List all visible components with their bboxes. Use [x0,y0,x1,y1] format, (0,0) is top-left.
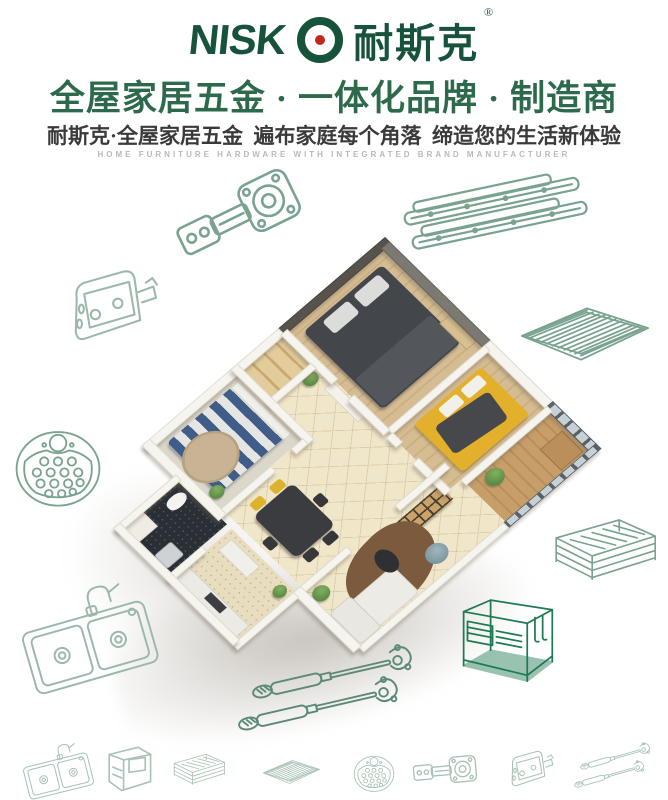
brand-logo: NISK 耐斯克® [0,14,668,66]
perforated-plate-icon [352,752,396,794]
perforated-plate-icon [12,424,104,510]
tagline-en: HOME FURNITURE HARDWARE WITH INTEGRATED … [0,150,668,159]
kitchen-sink-icon [17,736,98,800]
logo-o-icon [297,17,343,63]
poster: NISK 耐斯克® 全屋家居五金 · 一体化品牌 · 制造商 耐斯克·全屋家居五… [0,0,668,800]
door-bracket-icon [62,266,168,350]
logo-cjk: 耐斯克® [353,11,479,69]
wire-shelf-icon [510,294,658,374]
cabinet-hinge-icon [163,155,311,275]
countertop-rack-icon [454,592,560,694]
subheadline: 耐斯克·全屋家居五金 遍布家庭每个角落 缔造您的生活新体验 [0,120,668,150]
logo-text: NISK [186,16,287,64]
door-bracket-icon [506,746,558,794]
wire-basket-icon [540,512,666,590]
wire-basket-icon [166,748,230,792]
registered-mark: ® [484,5,495,20]
cabinet-hinge-icon [410,745,480,795]
wire-shelf-icon [258,752,324,792]
headline: 全屋家居五金 · 一体化品牌 · 制造商 [0,70,668,121]
storage-cabinet-icon [102,740,156,796]
